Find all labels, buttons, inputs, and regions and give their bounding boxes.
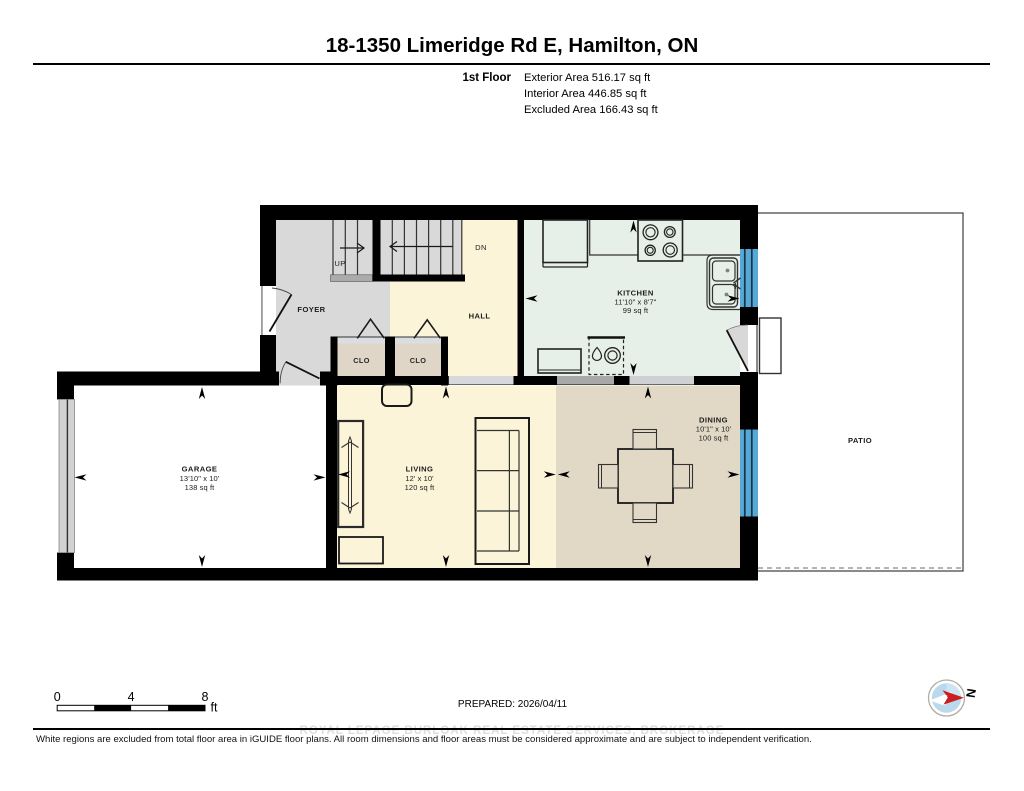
svg-text:PATIO: PATIO bbox=[848, 436, 872, 445]
svg-text:GARAGE: GARAGE bbox=[182, 465, 218, 474]
svg-text:N: N bbox=[963, 688, 978, 699]
svg-text:CLO: CLO bbox=[353, 356, 370, 365]
svg-text:FOYER: FOYER bbox=[297, 305, 325, 314]
svg-text:13'10" x 10': 13'10" x 10' bbox=[180, 474, 220, 483]
svg-text:UP: UP bbox=[334, 259, 345, 268]
svg-text:12' x 10': 12' x 10' bbox=[405, 474, 434, 483]
svg-text:HALL: HALL bbox=[469, 312, 491, 321]
svg-text:DN: DN bbox=[475, 243, 487, 252]
svg-text:10'1" x 10': 10'1" x 10' bbox=[696, 425, 732, 434]
svg-text:CLO: CLO bbox=[410, 356, 427, 365]
svg-text:100 sq ft: 100 sq ft bbox=[699, 434, 729, 443]
svg-text:KITCHEN: KITCHEN bbox=[617, 289, 654, 298]
svg-text:LIVING: LIVING bbox=[406, 465, 434, 474]
svg-text:138 sq ft: 138 sq ft bbox=[185, 483, 215, 492]
svg-text:99 sq ft: 99 sq ft bbox=[623, 306, 649, 315]
svg-text:DINING: DINING bbox=[699, 416, 728, 425]
svg-text:120 sq ft: 120 sq ft bbox=[405, 483, 435, 492]
